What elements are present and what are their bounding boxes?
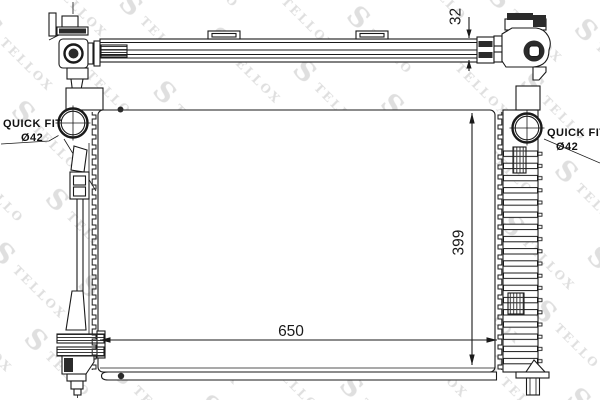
quick-fit-left-diameter: Ø42: [21, 132, 43, 144]
quick-fit-left-title: QUICK FIT: [3, 118, 63, 130]
dimension-label-32: 32: [448, 8, 465, 25]
radiator-technical-drawing: S TELLOX S TELLOX: [0, 0, 600, 400]
mounting-tab: [208, 31, 240, 39]
bottom-rail: [102, 372, 497, 380]
front-view: [56, 86, 550, 400]
quick-fit-right-diameter: Ø42: [556, 141, 578, 153]
mounting-tab: [356, 31, 388, 39]
right-side-plate: [497, 112, 503, 370]
left-inlet-stub: [66, 88, 103, 110]
right-inlet-stub: [516, 86, 540, 110]
drawing-canvas: S TELLOX S TELLOX: [0, 0, 600, 400]
dimension-label-399: 399: [451, 230, 468, 256]
left-side-plate: [91, 112, 97, 370]
dimension-label-650: 650: [278, 323, 304, 340]
quick-fit-right-title: QUICK FIT: [547, 127, 600, 139]
